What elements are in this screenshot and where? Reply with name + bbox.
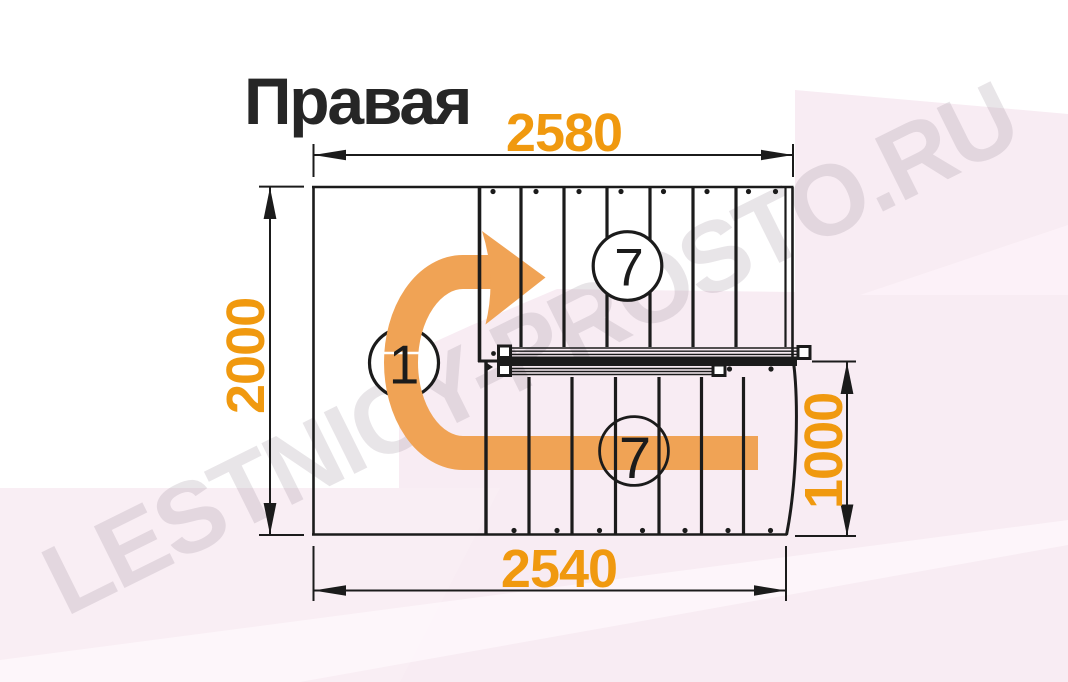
svg-text:1000: 1000 bbox=[794, 393, 854, 509]
svg-text:7: 7 bbox=[619, 426, 651, 491]
svg-text:2540: 2540 bbox=[501, 539, 617, 599]
svg-text:7: 7 bbox=[614, 239, 643, 298]
svg-text:2000: 2000 bbox=[216, 298, 276, 414]
svg-text:1: 1 bbox=[389, 334, 420, 396]
svg-text:Правая: Правая bbox=[244, 64, 470, 138]
svg-text:2580: 2580 bbox=[506, 103, 622, 163]
